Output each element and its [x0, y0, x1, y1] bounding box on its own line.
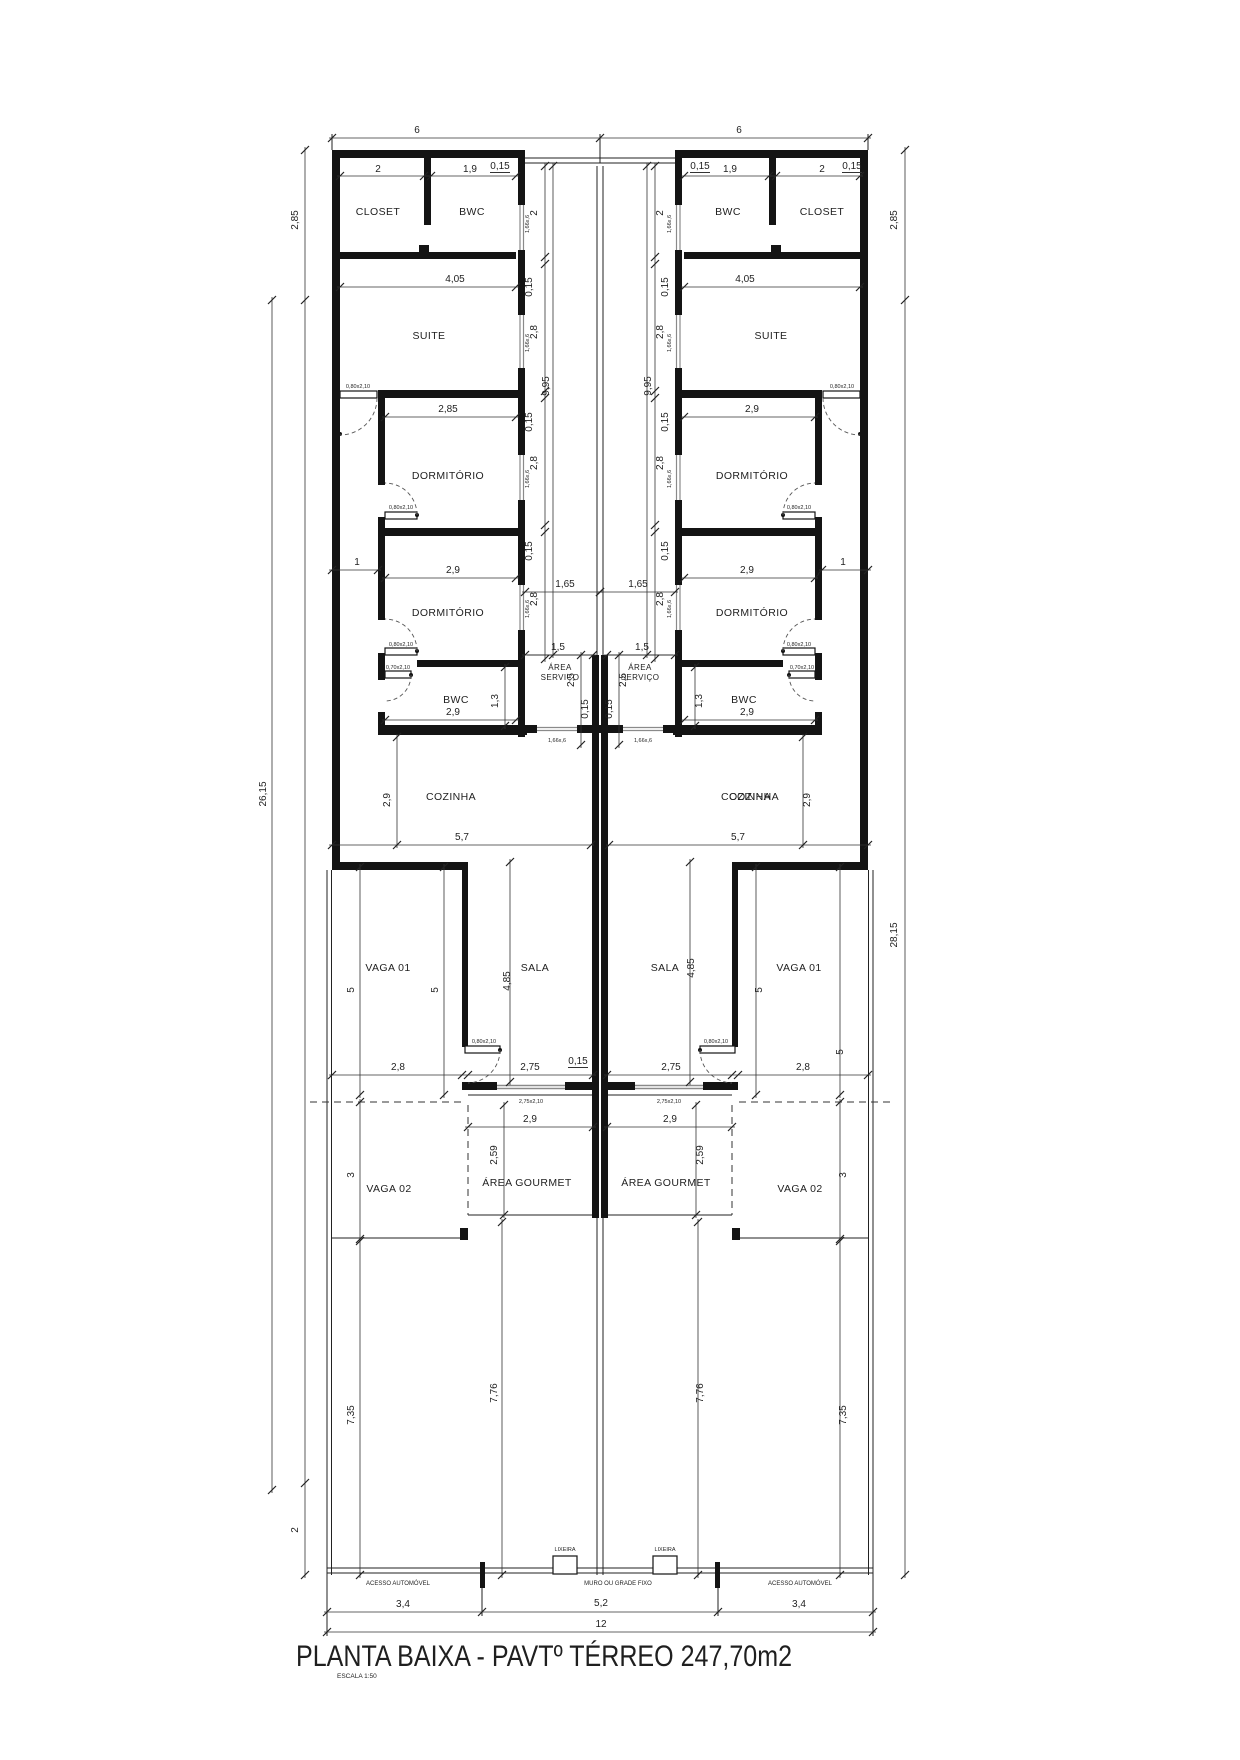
site-annotation: MURO OU GRADE FIXO [584, 1581, 652, 1587]
dim-label: 2 [375, 164, 381, 175]
door-leaves-layer [338, 391, 862, 1053]
dim-label: 1,3 [490, 694, 501, 708]
opening-tag: 0,80x2,10 [472, 1039, 496, 1045]
room-label: SALA [521, 962, 549, 974]
door-swing-arc [700, 1050, 732, 1083]
dashed-lines-layer [310, 1102, 890, 1215]
opening-tag: 1,66x,6 [667, 334, 673, 352]
wall [684, 252, 860, 259]
door-leaf [783, 648, 815, 655]
room-label: ÁREA [628, 663, 652, 672]
window [623, 725, 663, 733]
wall [680, 528, 822, 536]
room-label: COZINHA [729, 791, 779, 803]
trash-box [653, 1556, 677, 1574]
door-swings-layer [340, 398, 860, 1083]
dim-label: 1 [840, 557, 846, 568]
dim-label: 2,9 [745, 404, 759, 415]
wall [815, 653, 822, 680]
wall [732, 1228, 740, 1240]
wall [340, 252, 516, 259]
dim-label: 2,75 [520, 1062, 540, 1073]
wall [601, 655, 608, 1218]
dim-label: 1,5 [551, 642, 565, 653]
dim-label: 0,15 [490, 161, 510, 172]
wall [462, 1082, 497, 1090]
wall [592, 655, 599, 1218]
dim-label: 0,15 [524, 541, 535, 561]
dim-label: 2 [655, 210, 666, 216]
dim-label: 0,15 [604, 699, 615, 719]
room-label: VAGA 02 [777, 1183, 822, 1195]
room-label: DORMITÓRIO [412, 606, 484, 619]
floor-plan: CLOSETCLOSETBWCBWCSUITESUITEDORMITÓRIODO… [0, 0, 1240, 1755]
opening-tag: 1,66x,6 [667, 600, 673, 618]
trash-box [553, 1556, 577, 1574]
dim-label: 0,15 [660, 541, 671, 561]
door-leaf [385, 671, 411, 678]
wall [378, 390, 520, 398]
scale-note: ESCALA 1:50 [337, 1673, 377, 1680]
dim-label: 4,85 [686, 958, 697, 978]
wall [417, 660, 520, 667]
dim-label: 2,85 [889, 210, 900, 230]
opening-tag: 0,80x2,10 [704, 1039, 728, 1045]
dim-label: 2,8 [655, 592, 666, 606]
dim-label: 7,76 [489, 1383, 500, 1403]
dim-label: 5 [346, 987, 357, 993]
opening-tag: 1,66x,6 [525, 470, 531, 488]
opening-tag: 1,66x,6 [634, 738, 652, 744]
room-label: VAGA 01 [365, 962, 410, 974]
dim-label: 3,4 [792, 1599, 806, 1610]
dim-label: 6 [414, 125, 420, 136]
dim-label: 0,15 [660, 277, 671, 297]
room-label: DORMITÓRIO [716, 606, 788, 619]
wall [378, 528, 520, 536]
opening-tag: 0,70x2,10 [790, 665, 814, 671]
dim-label: 5,7 [731, 832, 745, 843]
wall [860, 150, 868, 870]
dim-label: 1,65 [628, 579, 648, 590]
dim-label: 2,9 [523, 1114, 537, 1125]
site-annotation: ACESSO AUTOMÓVEL [768, 1580, 833, 1587]
dim-label: 2,9 [382, 793, 393, 807]
dim-label: 2,85 [438, 404, 458, 415]
room-label: BWC [443, 694, 469, 706]
sheet-title: PLANTA BAIXA - PAVTº TÉRREO 247,70m2 [296, 1640, 792, 1673]
room-label: BWC [731, 694, 757, 706]
dim-label: 0,15 [690, 161, 710, 172]
room-label: DORMITÓRIO [412, 469, 484, 482]
door-leaf [340, 391, 377, 398]
dim-label: 9,95 [643, 376, 654, 396]
dim-label: 2,9 [802, 793, 813, 807]
dim-label: 2,9 [446, 707, 460, 718]
wall [732, 862, 738, 1047]
opening-tag: 0,70x2,10 [386, 665, 410, 671]
dim-label: 1,65 [555, 579, 575, 590]
wall [378, 398, 385, 485]
room-label: COZINHA [426, 791, 476, 803]
dim-label: 0,15 [568, 1056, 588, 1067]
opening-tag: 0,80x2,10 [830, 384, 854, 390]
site-annotation: LIXEIRA [654, 1547, 675, 1553]
wall [460, 1228, 468, 1240]
door-swing-arc [823, 398, 860, 435]
room-label: ÁREA GOURMET [621, 1176, 711, 1189]
dim-label: 7,76 [695, 1383, 706, 1403]
opening-tag: 1,66x,6 [525, 334, 531, 352]
walls-layer [332, 150, 868, 1588]
opening-tag: 1,66x,6 [667, 215, 673, 233]
dim-label: 2,59 [489, 1145, 500, 1165]
door-leaf [465, 1046, 500, 1053]
room-label: CLOSET [800, 206, 845, 218]
wall [462, 862, 468, 1047]
dim-label: 1,3 [694, 694, 705, 708]
site-annotation: LIXEIRA [554, 1547, 575, 1553]
wall [703, 1082, 738, 1090]
wall [480, 1562, 485, 1588]
dim-label: 2 [529, 210, 540, 216]
dimension-ticks-layer [268, 134, 909, 1636]
opening-tag: 0,80x2,10 [787, 642, 811, 648]
dim-label: 2 [819, 164, 825, 175]
dim-label: 3 [838, 1172, 849, 1178]
window [537, 725, 577, 733]
dim-label: 5 [754, 987, 765, 993]
wall [680, 390, 822, 398]
opening-tag: 2,75x2,10 [519, 1099, 543, 1105]
room-label: VAGA 02 [366, 1183, 411, 1195]
door-swing-arc [385, 675, 411, 701]
site-annotation: ACESSO AUTOMÓVEL [366, 1580, 431, 1587]
dim-label: 5,7 [455, 832, 469, 843]
dim-label: 2,9 [446, 565, 460, 576]
dim-label: 2,59 [695, 1145, 706, 1165]
dim-label: 0,15 [660, 412, 671, 432]
dim-label: 2,9 [740, 707, 754, 718]
dim-label: 5 [835, 1049, 846, 1055]
room-label: BWC [715, 206, 741, 218]
opening-tag: 2,75x2,10 [657, 1099, 681, 1105]
wall [663, 725, 673, 733]
opening-tag: 0,80x2,10 [787, 505, 811, 511]
dim-label: 1,9 [463, 164, 477, 175]
dim-label: 2,8 [655, 325, 666, 339]
door-swing-arc [468, 1050, 500, 1083]
dim-label: 4,05 [445, 274, 465, 285]
wall [424, 158, 431, 225]
opening-tag: 1,66x,6 [525, 215, 531, 233]
door-leaf [783, 512, 815, 519]
wall [419, 245, 429, 252]
door-leaf [700, 1046, 735, 1053]
dim-label: 2,85 [290, 210, 301, 230]
door-leaf [385, 648, 417, 655]
fence-lines-layer [327, 134, 873, 1636]
dim-label: 26,15 [258, 781, 269, 806]
dim-label: 12 [595, 1619, 607, 1630]
dim-label: 28,15 [889, 922, 900, 947]
dim-label: 0,15 [524, 412, 535, 432]
opening-tag: 1,66x,6 [548, 738, 566, 744]
dim-label: 2,9 [740, 565, 754, 576]
wall [332, 150, 340, 870]
room-label: BWC [459, 206, 485, 218]
dim-label: 5,2 [594, 1598, 608, 1609]
dim-label: 2,75 [661, 1062, 681, 1073]
dim-label: 3,4 [396, 1599, 410, 1610]
fixtures-layer [553, 1556, 677, 1574]
dim-label: 7,35 [346, 1405, 357, 1425]
door-swing-arc [340, 398, 377, 435]
dim-label: 2,8 [796, 1062, 810, 1073]
door-leaf [385, 512, 417, 519]
dim-label: 0,15 [842, 161, 862, 172]
dim-label: 1,9 [723, 164, 737, 175]
wall [769, 158, 776, 225]
drawing-sheet: CLOSETCLOSETBWCBWCSUITESUITEDORMITÓRIODO… [0, 0, 1240, 1755]
dim-label: 9,95 [541, 376, 552, 396]
dim-label: 2,8 [391, 1062, 405, 1073]
wall [527, 725, 537, 733]
dim-label: 2,5 [566, 673, 577, 687]
dim-label: 2,8 [529, 456, 540, 470]
wall [675, 150, 868, 158]
opening-tag: 0,80x2,10 [346, 384, 370, 390]
labels-layer: CLOSETCLOSETBWCBWCSUITESUITEDORMITÓRIODO… [258, 125, 900, 1680]
room-label: SALA [651, 962, 679, 974]
door-leaf [789, 671, 815, 678]
dim-label: 3 [346, 1172, 357, 1178]
room-label: SUITE [413, 330, 446, 342]
room-label: ÁREA [548, 663, 572, 672]
dim-label: 4,05 [735, 274, 755, 285]
dimension-lines-layer [272, 138, 905, 1632]
door-leaf [823, 391, 860, 398]
wall [607, 1082, 635, 1090]
dim-label: 6 [736, 125, 742, 136]
dim-label: 5 [430, 987, 441, 993]
wall [732, 862, 868, 870]
dim-label: 1,5 [635, 642, 649, 653]
dim-label: 4,85 [502, 971, 513, 991]
dim-label: 2 [290, 1527, 301, 1533]
dim-label: 0,15 [524, 277, 535, 297]
wall [378, 653, 385, 680]
room-label: ÁREA GOURMET [482, 1176, 572, 1189]
wall [771, 245, 781, 252]
room-label: DORMITÓRIO [716, 469, 788, 482]
door-swing-arc [789, 675, 815, 701]
wall [815, 398, 822, 485]
room-label: CLOSET [356, 206, 401, 218]
dim-label: 2,8 [655, 456, 666, 470]
room-label: VAGA 01 [776, 962, 821, 974]
dim-label: 1 [354, 557, 360, 568]
dim-label: 2,9 [663, 1114, 677, 1125]
dim-label: 0,15 [580, 699, 591, 719]
dim-label: 7,35 [838, 1405, 849, 1425]
opening-tag: 1,66x,6 [667, 470, 673, 488]
dim-label: 2,5 [618, 673, 629, 687]
wall [332, 150, 525, 158]
room-label: SUITE [755, 330, 788, 342]
opening-tag: 0,80x2,10 [389, 505, 413, 511]
opening-tag: 1,66x,6 [525, 600, 531, 618]
wall [715, 1562, 720, 1588]
opening-tag: 0,80x2,10 [389, 642, 413, 648]
wall [565, 1082, 593, 1090]
